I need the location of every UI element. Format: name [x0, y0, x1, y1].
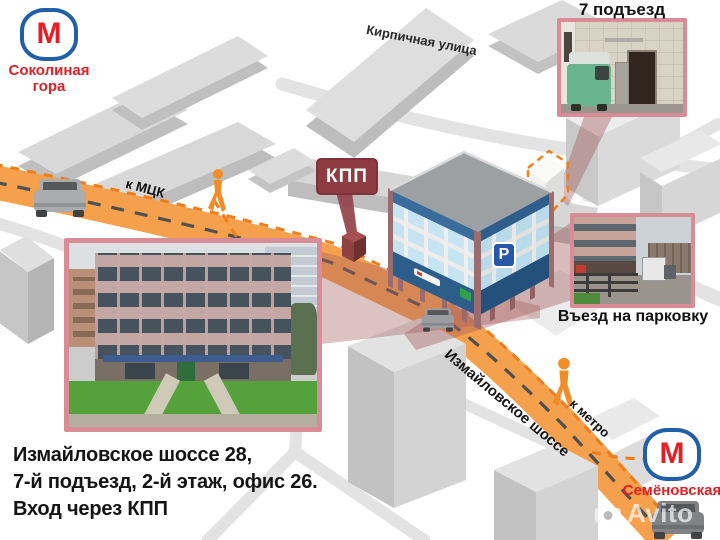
car-icon: [422, 308, 454, 332]
metro-logo-icon: М: [643, 428, 701, 481]
address-line-2: 7-й подъезд, 2-й этаж, офис 26.: [13, 469, 317, 496]
photo-entrance: [557, 18, 687, 117]
pedestrian-icon: [553, 358, 574, 407]
metro-logo-icon: М: [20, 8, 78, 61]
address-line-1: Измайловское шоссе 28,: [13, 442, 317, 469]
photo-parking-entry: [570, 213, 695, 308]
truck: [642, 257, 666, 281]
metro-station-name: Соколиная гора: [9, 63, 90, 95]
address-line-3: Вход через КПП: [13, 496, 317, 523]
metro-letter: М: [37, 19, 62, 49]
car-icon: [34, 179, 86, 217]
metro-station-name: Семёновская: [623, 483, 720, 499]
caption-entrance: 7 подъезд: [557, 0, 687, 20]
kpp-badge: КПП: [316, 158, 378, 195]
parking-icon: P: [494, 244, 514, 266]
caption-parking-entry: Въезд на парковку: [545, 308, 720, 326]
camera-icon: [594, 504, 622, 524]
watermark-text: Avito: [627, 498, 694, 529]
photo-building: [64, 238, 322, 432]
address-text: Измайловское шоссе 28, 7-й подъезд, 2-й …: [13, 442, 317, 523]
map-scheme: М Соколиная гора М Семёновская Кирпичная…: [0, 0, 720, 540]
metro-station-sokolinaya: М Соколиная гора: [8, 8, 90, 95]
metro-letter: М: [660, 439, 685, 469]
avito-watermark: Avito: [594, 498, 694, 529]
metro-station-semyonovskaya: М Семёновская: [624, 428, 720, 499]
